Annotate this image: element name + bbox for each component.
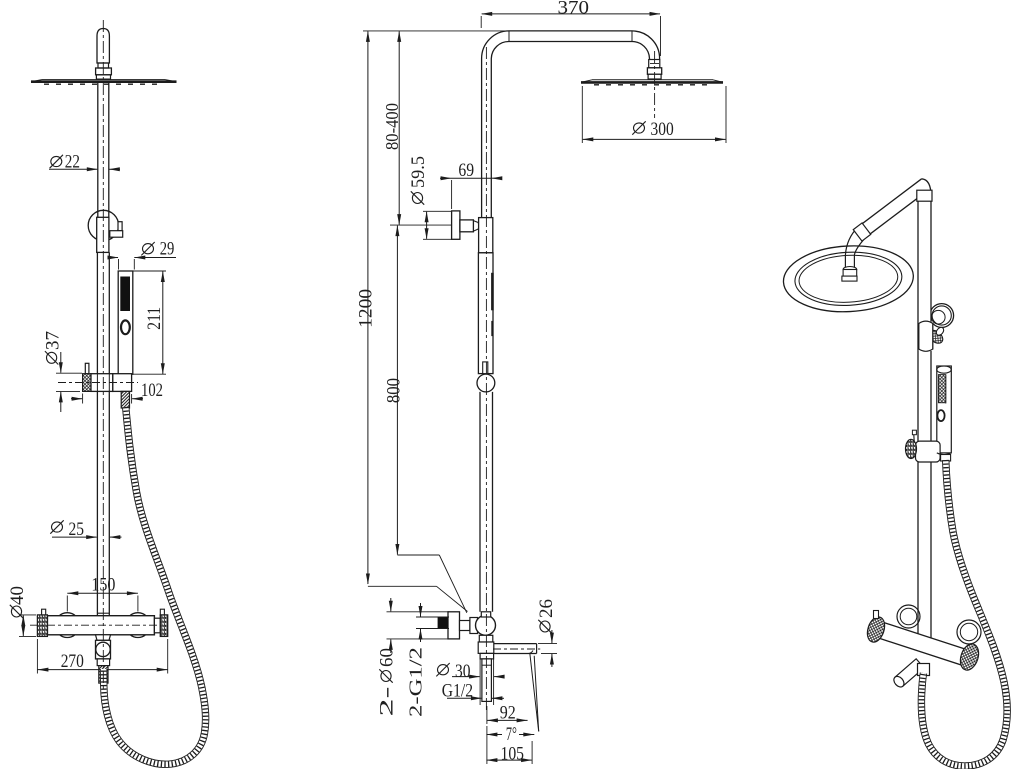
svg-text:105: 105 [501, 743, 525, 764]
svg-text:211: 211 [144, 307, 165, 330]
svg-text:69: 69 [458, 160, 474, 181]
svg-text:G1/2: G1/2 [442, 681, 473, 702]
svg-text:300: 300 [651, 119, 674, 140]
svg-text:29: 29 [160, 239, 175, 260]
svg-text:2-G1/2: 2-G1/2 [406, 647, 426, 717]
svg-text:26: 26 [536, 599, 557, 618]
svg-text:270: 270 [61, 651, 84, 672]
svg-text:25: 25 [69, 519, 85, 540]
svg-text:30: 30 [455, 661, 471, 682]
svg-text:59.5: 59.5 [408, 156, 429, 188]
svg-text:7°: 7° [506, 724, 517, 745]
svg-text:370: 370 [558, 0, 590, 18]
svg-text:92: 92 [500, 703, 516, 724]
svg-text:1200: 1200 [356, 289, 377, 328]
svg-text:37: 37 [42, 331, 63, 350]
svg-text:80-400: 80-400 [382, 103, 402, 150]
svg-text:60: 60 [377, 648, 398, 667]
svg-text:150: 150 [91, 575, 115, 596]
svg-text:2-: 2- [377, 687, 398, 717]
svg-text:102: 102 [141, 380, 163, 401]
svg-text:22: 22 [65, 152, 80, 173]
svg-text:40: 40 [7, 586, 28, 605]
svg-text:800: 800 [384, 378, 405, 403]
